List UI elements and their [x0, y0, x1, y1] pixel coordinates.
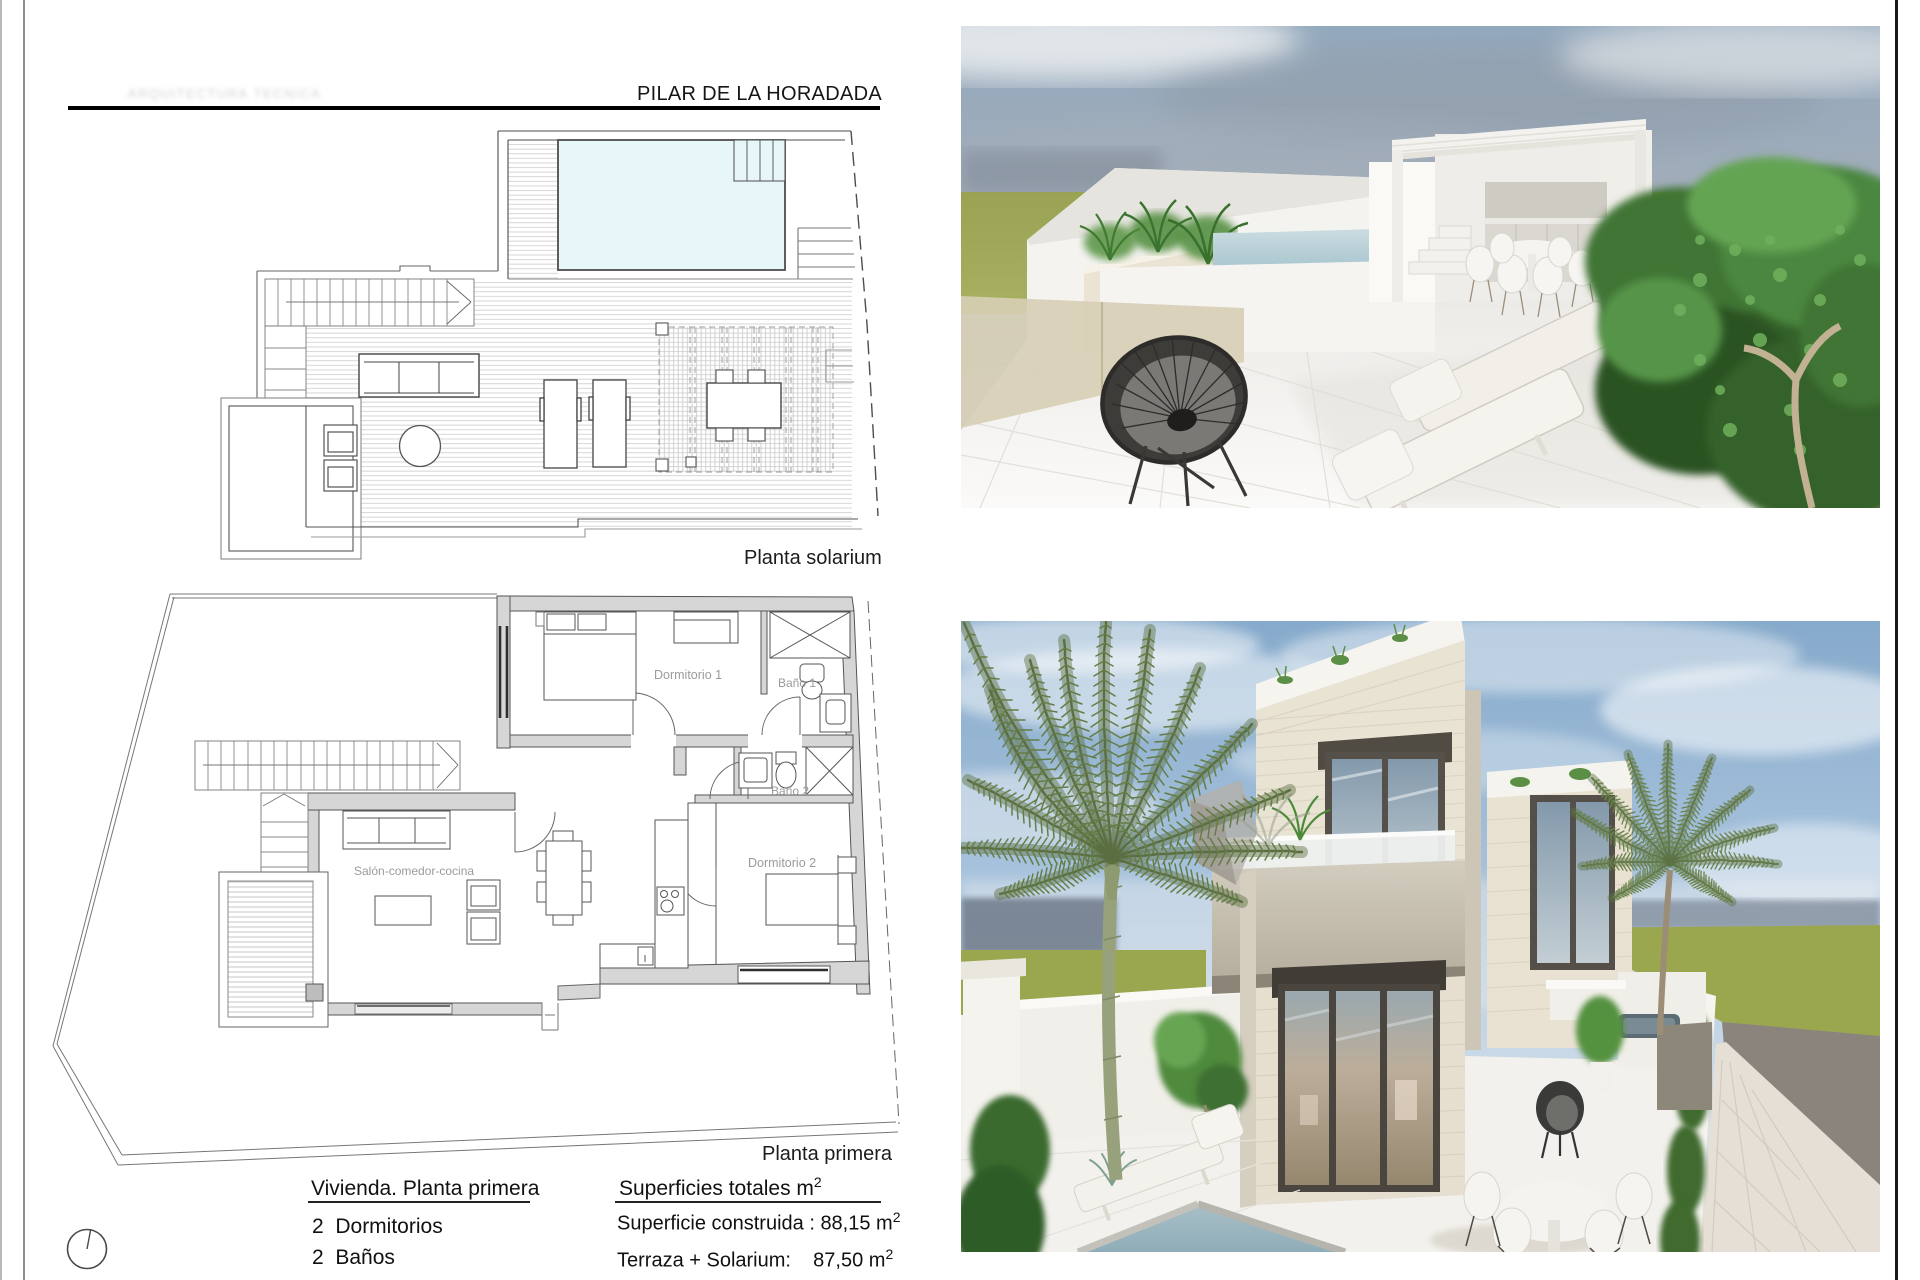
- svg-text:Baño 1: Baño 1: [778, 676, 816, 690]
- svg-text:Baño 2: Baño 2: [771, 784, 809, 798]
- svg-text:Dormitorio 2: Dormitorio 2: [748, 856, 816, 870]
- svg-text:Dormitorio 1: Dormitorio 1: [654, 668, 722, 682]
- svg-text:Salón-comedor-cocina: Salón-comedor-cocina: [354, 864, 474, 878]
